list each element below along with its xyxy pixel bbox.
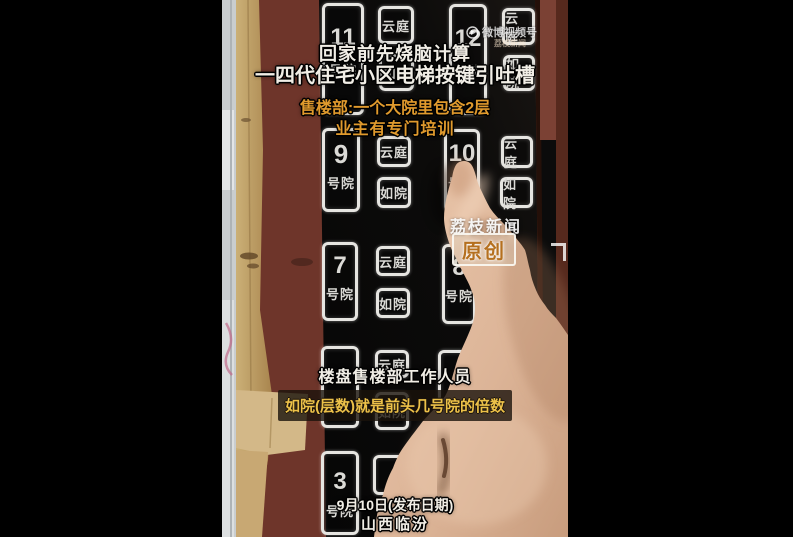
video-content-area: 11 号院 云庭 如院 12 号院 云庭 如院 9 号院 云庭 如院 10 号院… [222,0,568,537]
speaker-caption: 楼盘售楼部工作人员 [222,369,568,387]
location-caption: 山西临汾 [222,516,568,533]
video-frame-screenshot: 11 号院 云庭 如院 12 号院 云庭 如院 9 号院 云庭 如院 10 号院… [0,0,793,537]
original-badge-text: 原创 [462,235,506,264]
date-caption: 9月10日(发布日期) [222,497,568,513]
quote-caption-text: 如院(层数)就是前头几号院的倍数 [285,395,505,416]
subtitle-line-1: 售楼部:一个大院里包含2层 [222,100,568,118]
corner-mark [551,243,566,261]
original-badge: 原创 [452,233,516,266]
title-line-2: 一四代住宅小区电梯按键引吐槽 [222,65,568,88]
weibo-video-icon [466,26,479,39]
quote-caption-bar: 如院(层数)就是前头几号院的倍数 [278,390,512,421]
subtitle-line-2: 业主有专门培训 [222,121,568,139]
weibo-account-watermark: 荔枝新闻 [494,38,526,49]
